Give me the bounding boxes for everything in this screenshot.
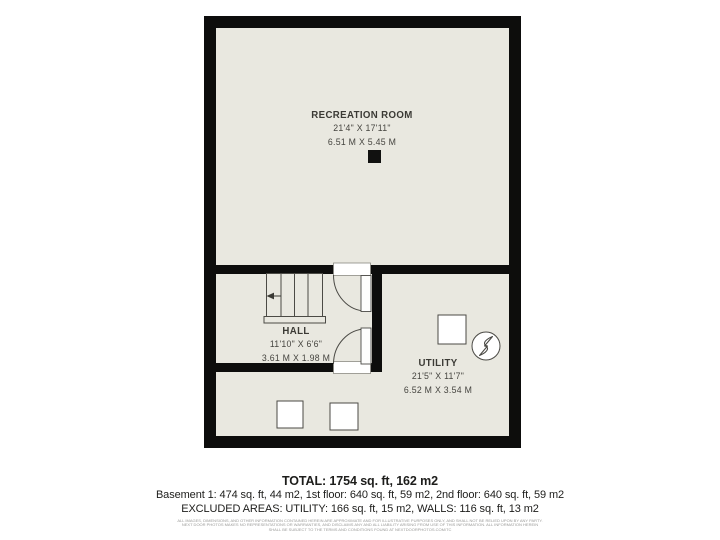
- laundry-appliance-left: [277, 401, 303, 428]
- room-dimensions-metric: 6.52 M X 3.54 M: [369, 384, 507, 398]
- room-label-recreation: RECREATION ROOM 21'4" X 17'11" 6.51 M X …: [270, 108, 454, 149]
- room-dimensions-imperial: 21'5" X 11'7": [369, 370, 507, 384]
- laundry-appliance-right: [330, 403, 358, 430]
- support-post: [368, 150, 381, 163]
- excluded-areas-text: EXCLUDED AREAS: UTILITY: 166 sq. ft, 15 …: [0, 503, 720, 517]
- total-area-text: TOTAL: 1754 sq. ft, 162 m2: [0, 474, 720, 489]
- utility-appliance: [438, 315, 466, 344]
- door-leaf-top: [361, 276, 371, 312]
- room-dimensions-imperial: 21'4" X 17'11": [270, 122, 454, 136]
- room-label-utility: UTILITY 21'5" X 11'7" 6.52 M X 3.54 M: [369, 356, 507, 397]
- room-name: HALL: [227, 324, 365, 338]
- room-name: UTILITY: [369, 356, 507, 370]
- floorplan-page: RECREATION ROOM 21'4" X 17'11" 6.51 M X …: [0, 0, 720, 540]
- room-dimensions-imperial: 11'10" X 6'6": [227, 338, 365, 352]
- room-label-hall: HALL 11'10" X 6'6" 3.61 M X 1.98 M: [227, 324, 365, 365]
- door-opening-top: [334, 263, 371, 276]
- room-dimensions-metric: 6.51 M X 5.45 M: [270, 136, 454, 150]
- room-dimensions-metric: 3.61 M X 1.98 M: [227, 352, 365, 366]
- stair-landing: [264, 317, 326, 324]
- disclaimer-line: SHALL BE SUBJECT TO THE TERMS AND CONDIT…: [0, 528, 720, 532]
- legal-disclaimer: ALL IMAGES, DIMENSIONS, AND OTHER INFORM…: [0, 519, 720, 532]
- floor-areas-text: Basement 1: 474 sq. ft, 44 m2, 1st floor…: [0, 489, 720, 503]
- room-name: RECREATION ROOM: [270, 108, 454, 122]
- floorplan-drawing: [0, 0, 720, 540]
- area-summary: TOTAL: 1754 sq. ft, 162 m2 Basement 1: 4…: [0, 474, 720, 532]
